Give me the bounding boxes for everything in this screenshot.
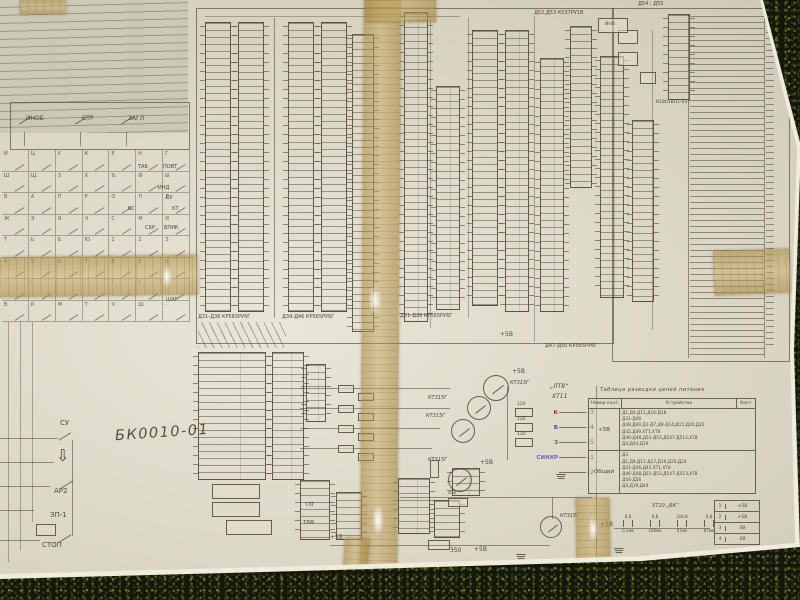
ic-chip	[238, 22, 264, 312]
ic-chip	[540, 58, 564, 312]
matrix-key-cell: Ш	[136, 301, 163, 323]
col-header: Устройство	[622, 399, 737, 408]
matrix-key-cell: Ш	[2, 172, 29, 194]
power-label: +5В	[474, 547, 487, 554]
ic-chip	[336, 492, 362, 540]
tape-shine	[588, 516, 598, 542]
cap-value: 6,8	[645, 514, 665, 519]
device-line: Д4,Д19,Д44	[622, 484, 750, 490]
connector-pin-row: В‹4	[532, 420, 594, 435]
col-header: Конт	[737, 399, 755, 408]
device-list: Д3Д1,Д9,Д11-Д17,Д19,Д20,Д24Д31-Д46,Д42,Х…	[620, 451, 752, 492]
audio-label: ТЛФ	[303, 521, 314, 527]
capacitor-icon	[677, 520, 687, 527]
ic-caption: Д39-Д46 КР565РУ6Г	[282, 315, 334, 321]
power-label: +5В	[480, 460, 493, 467]
transistor-label: КТ315Г	[510, 381, 529, 387]
key-label: ИНД	[158, 186, 169, 192]
power-table-header: Номер конт. Устройство Конт	[589, 399, 755, 409]
connector-pin-row: К‹3	[532, 405, 594, 420]
capacitor-icon	[650, 520, 660, 527]
wire	[24, 132, 25, 146]
wire	[688, 14, 689, 358]
transistor-label: КТ315Г	[428, 396, 447, 402]
wire	[614, 528, 710, 529]
key-label: КТ	[172, 207, 179, 213]
matrix-key-cell: 1	[109, 236, 136, 258]
wire	[8, 322, 9, 562]
resistor-value: 120	[517, 432, 526, 437]
ic-chip	[570, 26, 592, 188]
matrix-key-cell: А	[29, 193, 56, 215]
cap-value: 6,8	[618, 514, 638, 519]
resistor	[338, 405, 354, 413]
matrix-key-cell: Ч	[83, 215, 110, 237]
net-name: 0В	[726, 537, 759, 542]
matrix-key-cell: Ч	[109, 301, 136, 323]
key-label: ШАГ	[166, 298, 178, 304]
capacitor-bank: 6,80,1мк6,8100мк2х6,847мк6,867мк	[618, 514, 719, 533]
net-name: +5В	[726, 504, 759, 509]
matrix-key-cell: Я	[56, 215, 83, 237]
power-table-title: Таблица разводки цепей питания	[600, 388, 705, 394]
connector-ticks	[766, 20, 774, 350]
matrix-key-cell: Ъ	[109, 172, 136, 194]
resistor-value: 120	[517, 417, 526, 422]
transistor	[483, 375, 509, 401]
wire	[559, 412, 586, 413]
ic-caption: Д31-Д38 КР565РУ6Г	[198, 315, 250, 321]
ic-chip	[398, 478, 430, 534]
matrix-key-cell: Т	[83, 301, 110, 323]
ic-caption: К1801ВП1-037	[656, 100, 690, 105]
wire	[652, 30, 653, 330]
resistor	[430, 460, 439, 478]
matrix-key-cell: Й	[2, 150, 29, 172]
matrix-key-cell: Ь	[29, 236, 56, 258]
matrix-key-cell: З	[56, 172, 83, 194]
inv-label: ИНВ	[605, 22, 615, 27]
power-label: +5В	[512, 369, 525, 376]
special-key-label: АР2	[54, 488, 67, 496]
component-box	[640, 72, 656, 84]
key-label: ПОВТ	[163, 165, 177, 171]
ic-chip	[300, 480, 330, 540]
matrix-key-cell: В	[2, 301, 29, 323]
tape-patch-right	[713, 249, 790, 296]
wire	[507, 387, 508, 460]
ic-caption: Д52,Д53 К537РУ1В	[534, 11, 583, 17]
wire	[20, 322, 21, 550]
resistor	[515, 423, 533, 432]
matrix-key-cell: У	[56, 150, 83, 172]
mode-switch-box	[10, 102, 190, 150]
power-table-row: +5В Д1,Д9,Д11,Д16-Д18Д31-Д46Д48,Д49,Д1-Д…	[589, 409, 755, 451]
mini-table-row: 2+5В	[715, 512, 759, 523]
switch-lever	[59, 534, 71, 542]
wire	[72, 440, 73, 536]
special-key-label: СТОП	[42, 542, 62, 550]
ic-chip	[472, 30, 498, 306]
key-label: ВС	[128, 207, 135, 213]
transistor	[451, 419, 475, 443]
matrix-key-cell: С	[109, 215, 136, 237]
ic-chip	[205, 22, 231, 312]
capacitor: 6,8100мк	[645, 514, 665, 533]
ic-chip	[321, 22, 347, 312]
special-key-label: СУ	[60, 420, 69, 428]
connector-designator: ХТ11	[552, 394, 567, 401]
pin-number: 1	[715, 504, 726, 509]
component-box	[226, 520, 272, 535]
power-table-row: Общий Д3Д1,Д9,Д11-Д17,Д19,Д20,Д24Д31-Д46…	[589, 451, 755, 492]
transistor	[467, 396, 491, 420]
signal-label: К	[532, 410, 558, 416]
wire	[274, 18, 275, 318]
component-box	[212, 502, 260, 517]
matrix-key-cell: Е	[109, 150, 136, 172]
signal-label: СИНХР	[532, 455, 558, 461]
wire	[126, 132, 127, 146]
pin-number: 4	[715, 537, 726, 542]
matrix-key-cell: В	[2, 193, 29, 215]
wire	[559, 427, 586, 428]
ic-chip	[505, 30, 529, 312]
special-key-label: ЗП-1	[50, 512, 67, 520]
power-label: +5В	[500, 332, 513, 339]
device-list: Д1,Д9,Д11,Д16-Д18Д31-Д46Д48,Д49,Д1-Д7,Д9…	[620, 409, 752, 450]
ic-chip	[600, 56, 624, 298]
net-name: 0В	[726, 526, 759, 531]
ic-chip	[632, 120, 654, 302]
connector-name: „ЛТ8“	[550, 384, 568, 391]
connector-pin-row: З‹5	[532, 435, 594, 450]
power-table: Номер конт. Устройство Конт +5В Д1,Д9,Д1…	[588, 398, 756, 494]
resistor	[338, 385, 354, 393]
key-label: СУ	[166, 196, 173, 202]
power-label: +5В	[330, 535, 343, 542]
resistor	[515, 408, 533, 417]
enter-arrow-key: ⇩	[56, 446, 69, 465]
tape-corner-topleft	[20, 0, 66, 14]
schematic-paper: ИНОБ СТР ЗАГЛ ЙЦУКЕНГШЩЗХЪФЫВАПРОЛДЖЭЯЧС…	[0, 0, 800, 600]
resistor-value: 350	[450, 548, 461, 555]
ic-chip	[668, 14, 690, 100]
col-header: Номер конт.	[589, 399, 622, 408]
ic-caption: Д54 ; Д55	[638, 2, 663, 8]
matrix-key-cell: Щ	[29, 172, 56, 194]
signal-label: В	[532, 425, 558, 431]
ic-chip	[404, 12, 428, 322]
transistor	[448, 468, 472, 492]
device-line: Д4,Д44,Д19	[622, 442, 750, 448]
wire	[0, 510, 34, 511]
wire	[80, 132, 81, 146]
bus-lines	[690, 306, 764, 356]
matrix-key-cell: К	[83, 150, 110, 172]
resistor	[448, 498, 468, 507]
ic-caption: Д47-Д50 КР565РУ6Г	[545, 344, 597, 350]
matrix-key-cell: Т	[2, 236, 29, 258]
matrix-key-cell: Ж	[2, 215, 29, 237]
ic-chip	[306, 364, 326, 422]
photo-background: ИНОБ СТР ЗАГЛ ЙЦУКЕНГШЩЗХЪФЫВАПРОЛДЖЭЯЧС…	[0, 0, 800, 600]
capacitor-icon	[623, 520, 633, 527]
wire	[534, 16, 535, 342]
capacitor-icon	[704, 520, 714, 527]
tape-shine	[368, 286, 382, 314]
ic-caption: Д21-Д28 КР565РУ6Г	[400, 314, 452, 320]
matrix-key-cell: Ц	[29, 150, 56, 172]
cap-value: 2х6,8	[672, 514, 692, 519]
matrix-key-cell: ·	[163, 301, 190, 323]
switch-lever	[59, 432, 71, 440]
ic-chip	[272, 352, 304, 480]
matrix-key-cell: М	[56, 301, 83, 323]
matrix-key-cell: Ю	[83, 236, 110, 258]
component-box	[36, 524, 56, 536]
wire	[400, 497, 592, 498]
tape-shine	[372, 504, 384, 536]
mini-table-row: 30В	[715, 523, 759, 534]
wire-fan	[198, 322, 286, 348]
ic-chip	[198, 352, 266, 480]
net-name: +5В	[726, 515, 759, 520]
connector-pin-row: СИНХР‹1	[532, 450, 594, 465]
component-box	[212, 484, 260, 499]
aux-connector-label: ХТ10 „БК“	[652, 504, 679, 510]
resistor-value: 43к	[448, 491, 456, 496]
resistor-value: 120	[517, 402, 526, 407]
transistor	[540, 516, 562, 538]
net-name: +5В	[589, 409, 620, 450]
tape-strip-top	[366, 0, 436, 22]
ground-icon	[516, 554, 526, 560]
inv-box: ИНВ	[598, 18, 628, 33]
tape-shine	[162, 266, 172, 288]
pin-number: 3	[715, 526, 726, 531]
resistor	[338, 425, 354, 433]
wire	[764, 14, 765, 358]
wire	[468, 18, 469, 318]
net-name: Общий	[589, 451, 620, 492]
pin-number: 2	[715, 515, 726, 520]
wire	[559, 472, 586, 473]
key-label: ВПИК	[164, 226, 178, 232]
mini-table-row: 40В	[715, 534, 759, 544]
capacitor: 2х6,847мк	[672, 514, 692, 533]
video-connector-pins: К‹3В‹4З‹5СИНХР‹1‹2	[532, 405, 594, 480]
wire	[32, 322, 33, 522]
key-label: СБР	[145, 226, 155, 232]
mini-power-table: 1+5В2+5В30В40В	[714, 500, 760, 545]
wire	[559, 442, 586, 443]
ground-icon	[614, 548, 624, 554]
signal-label: З	[532, 440, 558, 446]
matrix-key-cell: Х	[83, 172, 110, 194]
matrix-key-cell: П	[56, 193, 83, 215]
matrix-key-cell: Л	[136, 193, 163, 215]
resistor	[515, 438, 533, 447]
matrix-key-cell: Б	[56, 236, 83, 258]
capacitor: 6,80,1мк	[618, 514, 638, 533]
key-label: ТАБ	[138, 165, 148, 171]
matrix-key-cell: Р	[83, 193, 110, 215]
ic-chip	[436, 86, 460, 310]
wire	[559, 457, 586, 458]
mini-table-row: 1+5В	[715, 501, 759, 512]
audio-label: ТЛГ	[305, 503, 315, 509]
resistor	[338, 445, 354, 453]
transistor-label: КТ315Г	[426, 414, 445, 420]
wire	[552, 497, 553, 519]
matrix-key-cell: Э	[29, 215, 56, 237]
wire	[430, 18, 431, 328]
matrix-key-cell: К	[29, 301, 56, 323]
component-box	[618, 52, 638, 66]
ic-chip	[288, 22, 314, 312]
